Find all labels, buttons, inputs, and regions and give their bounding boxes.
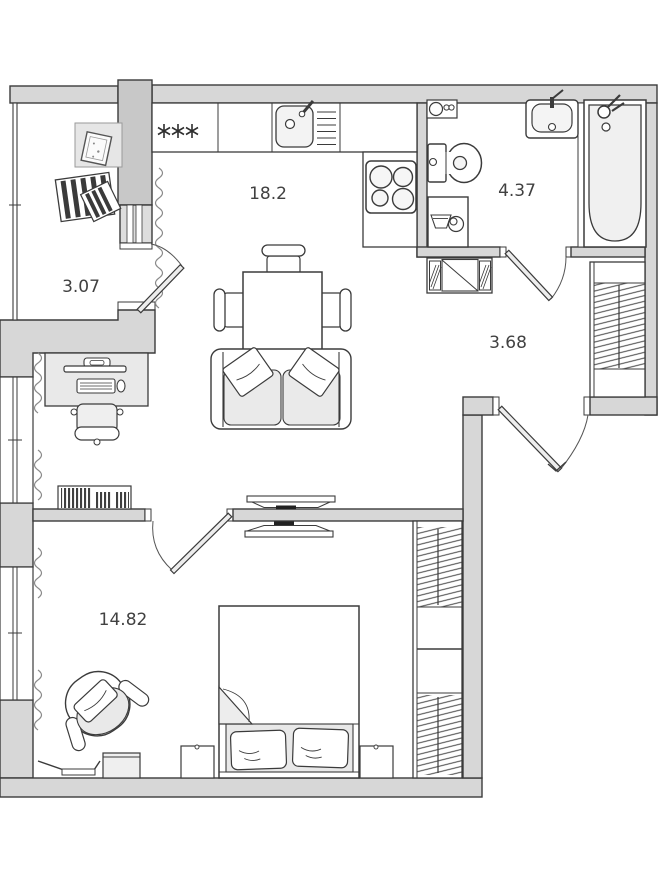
sink-faucet-base [299, 111, 305, 117]
wall-top [152, 85, 657, 103]
burner [370, 166, 392, 188]
wall-entry-right [590, 397, 657, 415]
nightstand [181, 745, 214, 778]
tub-faucet [598, 106, 610, 118]
office-chair [71, 404, 123, 445]
chair-right [318, 289, 351, 331]
tv-bedroom [245, 522, 333, 538]
pillow [292, 728, 348, 768]
bathroom-fixtures [427, 90, 646, 247]
keyboard [77, 379, 115, 393]
door-arc [551, 257, 566, 299]
radiator-squiggle [35, 670, 42, 730]
floor-plan-drawing: 18.2 3.07 4.37 3.68 14.82 [0, 0, 660, 880]
wall-bottom [0, 778, 482, 797]
room-label-bedroom: 14.82 [99, 610, 148, 630]
wall-bathroom-bottom [417, 247, 500, 257]
door-leaf-entrance [498, 406, 561, 471]
tub-drain [602, 123, 610, 131]
radiators [35, 168, 163, 730]
kitchen [152, 101, 417, 247]
wall-tubroom-bottom [571, 247, 645, 257]
sofa [211, 347, 351, 429]
floor-plan: 18.2 3.07 4.37 3.68 14.82 [0, 0, 660, 880]
gas-burner-marks [158, 124, 198, 138]
door-cap [120, 243, 152, 249]
armchair [41, 651, 153, 756]
nightstand [360, 745, 393, 778]
wall-bedroom-partition-right [233, 509, 463, 521]
loggia-furniture [55, 123, 122, 222]
wall-bedroom-partition-left [33, 509, 145, 521]
bookshelf [58, 486, 131, 509]
mouse [117, 380, 125, 392]
wall-left-pier [0, 503, 33, 567]
radiator-squiggle [35, 450, 42, 500]
drying-rack [55, 172, 120, 221]
wall-tub-partition [578, 103, 584, 247]
door-cap [145, 509, 151, 521]
door-cap [584, 397, 590, 415]
bed [219, 606, 359, 778]
door-arc [560, 415, 588, 470]
wall-bathroom-left [417, 103, 427, 257]
bedroom-wardrobe [413, 521, 462, 778]
room-label-hallway: 3.68 [489, 333, 527, 353]
door-leaf-bedroom [170, 513, 231, 573]
loggia-window [13, 103, 17, 320]
wall-entry-left [463, 397, 493, 415]
radiator-squiggle [35, 353, 42, 413]
bathtub [584, 95, 646, 247]
wall-right-lower [463, 415, 482, 778]
door-leaf-loggia [137, 265, 184, 313]
door-cap [566, 247, 571, 257]
bedroom-furniture [38, 521, 462, 778]
burner [394, 168, 413, 187]
vent-fan-box [427, 100, 457, 118]
door-leaf-bathroom [505, 250, 552, 300]
dining-table [243, 272, 322, 350]
radiator-squiggle [35, 548, 42, 598]
desk-area [45, 353, 148, 509]
vent-shaft-slot [127, 205, 133, 243]
wall-loggia-top [10, 86, 118, 103]
room-label-bathroom: 4.37 [498, 181, 536, 201]
washing-machine [428, 197, 468, 247]
shoe-cabinet [427, 258, 492, 293]
tv-living-room [247, 496, 335, 510]
sink-drain [286, 120, 295, 129]
room-label-kitchen-living: 18.2 [249, 184, 287, 204]
room-label-loggia: 3.07 [62, 277, 100, 297]
monitor [64, 366, 126, 372]
toilet [428, 144, 482, 183]
door-cap [493, 397, 499, 415]
door-arc [153, 521, 172, 570]
sink-basin [276, 106, 313, 147]
burner [393, 189, 414, 210]
windows [0, 103, 33, 700]
picture-frame [81, 132, 111, 166]
burner [372, 190, 388, 206]
door-cap [500, 247, 506, 257]
column [118, 80, 152, 205]
monitor-stand-inner [90, 361, 104, 366]
vent-shaft-slot [136, 205, 142, 243]
wall-left-pier [0, 700, 33, 778]
dining-set [214, 245, 351, 350]
hall-wardrobe [590, 262, 645, 397]
stove [366, 161, 416, 213]
low-shelf [38, 761, 100, 775]
side-table [103, 753, 140, 778]
doors [137, 244, 588, 574]
chair-top [262, 245, 305, 274]
wall-right-upper [645, 103, 657, 415]
pillow [230, 730, 286, 770]
